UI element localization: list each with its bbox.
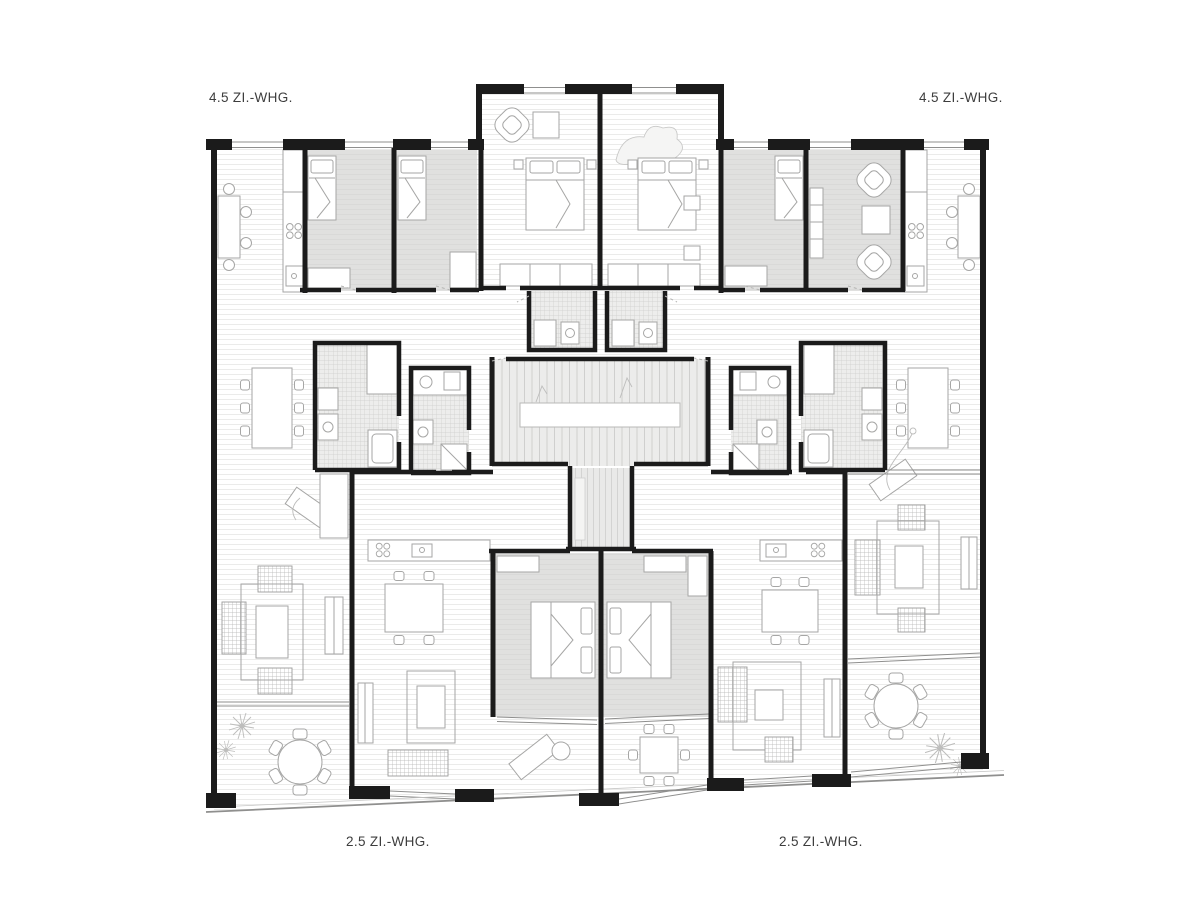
- wardrobe: [320, 474, 348, 538]
- bed-single: [775, 156, 803, 220]
- wardrobe: [725, 266, 767, 286]
- label-apartment-top-right: 4.5 ZI.-WHG.: [919, 90, 1003, 105]
- label-apartment-top-left: 4.5 ZI.-WHG.: [209, 90, 293, 105]
- bed-single: [308, 156, 336, 220]
- kitchen-right: [905, 150, 927, 292]
- wardrobe: [450, 252, 476, 288]
- label-apartment-bottom-right: 2.5 ZI.-WHG.: [779, 834, 863, 849]
- wardrobe: [308, 268, 350, 288]
- floor-plan-drawing: [0, 0, 1200, 900]
- bed-single: [398, 156, 426, 220]
- kitchen-left: [283, 150, 305, 292]
- label-apartment-bottom-left: 2.5 ZI.-WHG.: [346, 834, 430, 849]
- floorplan-canvas: 4.5 ZI.-WHG. 4.5 ZI.-WHG. 2.5 ZI.-WHG. 2…: [0, 0, 1200, 900]
